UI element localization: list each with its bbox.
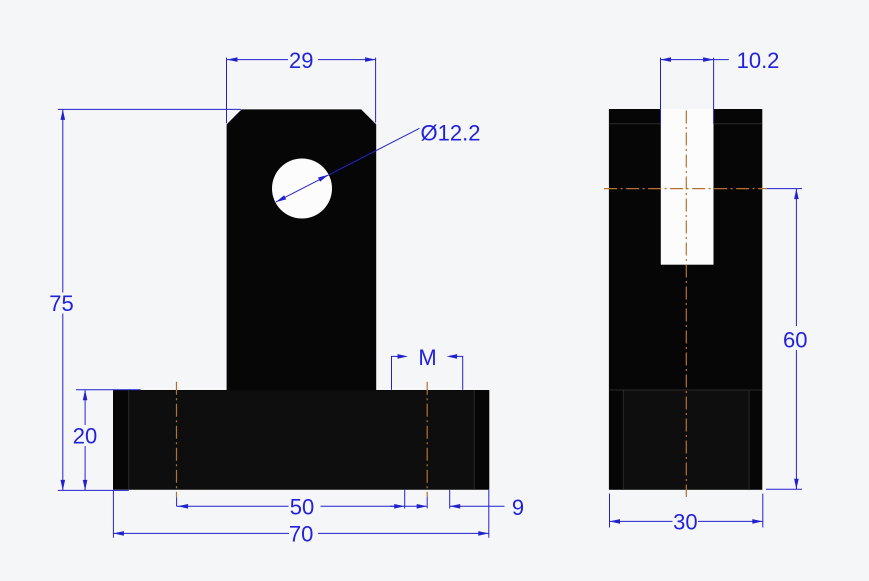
svg-text:70: 70 (289, 522, 313, 547)
svg-text:M: M (418, 345, 436, 370)
svg-text:60: 60 (783, 328, 807, 353)
svg-text:50: 50 (290, 495, 314, 520)
svg-text:10.2: 10.2 (737, 48, 780, 73)
svg-text:9: 9 (512, 495, 524, 520)
svg-text:Ø12.2: Ø12.2 (421, 120, 481, 145)
svg-text:75: 75 (49, 291, 73, 316)
svg-text:30: 30 (673, 510, 697, 535)
svg-text:29: 29 (289, 48, 313, 73)
svg-text:20: 20 (73, 424, 97, 449)
